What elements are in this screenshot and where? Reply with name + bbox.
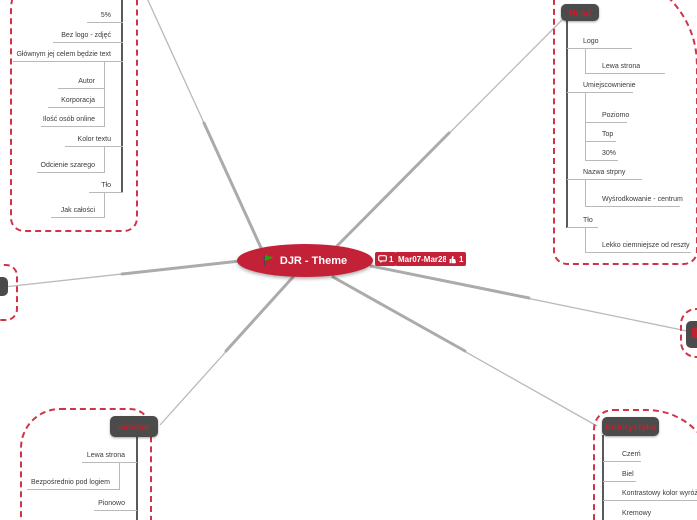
root-topic-label: DJR - Theme: [280, 255, 347, 267]
tree-item[interactable]: Tło: [89, 179, 123, 193]
tree-item[interactable]: Top: [585, 128, 616, 142]
comments-count: 1: [389, 255, 393, 264]
comments-badge[interactable]: 1: [375, 252, 396, 266]
tree-item[interactable]: Odcienie szarego: [37, 159, 105, 173]
tree-item[interactable]: Biel: [603, 468, 636, 482]
date-range-badge[interactable]: Mar07-Mar28: [395, 252, 450, 266]
group-header-head[interactable]: Head: [561, 4, 599, 21]
cut-node-right[interactable]: [686, 321, 697, 348]
tree-item[interactable]: Lewa strona: [585, 60, 665, 74]
root-topic[interactable]: DJR - Theme: [237, 244, 373, 277]
likes-badge[interactable]: 1: [446, 252, 466, 266]
cut-node-left[interactable]: [0, 277, 8, 296]
thumbs-up-icon: [449, 255, 457, 264]
group-header-kolorystyka[interactable]: Kolorystyka: [602, 417, 659, 436]
group-header-label: Kolorystyka: [605, 422, 657, 432]
tree-item[interactable]: Poziomo: [585, 109, 627, 123]
group-header-label: sidebar: [118, 422, 150, 432]
tree-item[interactable]: Umiejscownienie: [567, 79, 633, 93]
likes-count: 1: [459, 255, 463, 264]
tree-trunk: [566, 20, 568, 228]
group-header-sidebar[interactable]: sidebar: [110, 416, 158, 437]
tree-item[interactable]: Lekko ciemniejsze od reszty: [585, 239, 691, 253]
flag-icon: [263, 254, 275, 267]
tree-item[interactable]: Kolor textu: [65, 133, 123, 147]
tree-item[interactable]: Jak całości: [51, 204, 105, 218]
tree-item[interactable]: Kremowy: [603, 507, 649, 520]
tree-item[interactable]: 5%: [87, 9, 123, 23]
tree-item[interactable]: Bez logo - zdjęć: [53, 29, 123, 43]
tree-item[interactable]: Logo: [567, 35, 632, 49]
tree-item[interactable]: Głównym jej celem będzie text: [13, 48, 123, 62]
tree-item[interactable]: Kontrastowy kolor wyróżnia: [603, 487, 697, 501]
tree-item[interactable]: Pionowo: [94, 497, 137, 511]
tree-item[interactable]: Bezpośrednio pod logiem: [27, 476, 120, 490]
cut-node-label-fragment: [692, 328, 697, 338]
tree-item[interactable]: 30%: [585, 147, 618, 161]
tree-item[interactable]: Nazwa strpny: [567, 166, 642, 180]
mindmap-canvas: 5% Bez logo - zdjęć Głównym jej celem bę…: [0, 0, 697, 520]
tree-item[interactable]: Autor: [58, 75, 105, 89]
date-range-label: Mar07-Mar28: [398, 255, 447, 264]
tree-item[interactable]: Ilość osób online: [41, 113, 105, 127]
tree-item[interactable]: Lewa strona: [82, 449, 137, 463]
tree-item[interactable]: Tło: [567, 214, 598, 228]
comment-icon: [378, 255, 387, 264]
tree-item[interactable]: Czerń: [603, 448, 641, 462]
tree-item[interactable]: Wyśrodkowanie - centrum: [585, 193, 680, 207]
group-header-label: Head: [569, 8, 591, 18]
tree-item[interactable]: Korporacja: [48, 94, 105, 108]
